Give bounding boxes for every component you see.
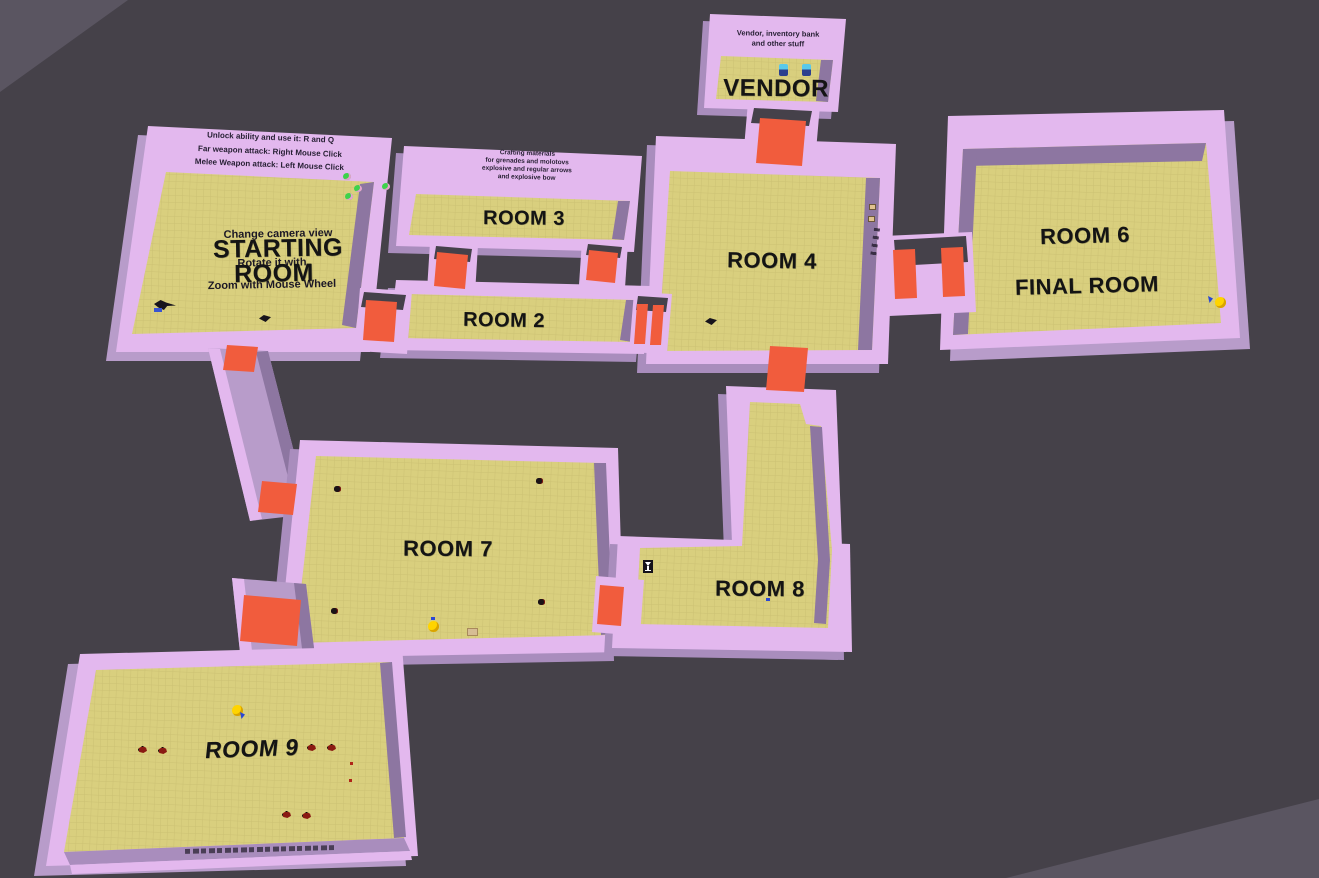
door-room3-left[interactable] (434, 252, 468, 289)
room8-label: ROOM 8 (715, 576, 805, 603)
enemy-icon (350, 762, 353, 765)
room3-wall-note: Crafting materials for grenades and molo… (432, 147, 623, 185)
door-room4-south[interactable] (766, 346, 808, 392)
door-vendor[interactable] (756, 118, 806, 166)
level-map: Unlock ability and use it: R and Q Far w… (0, 0, 1319, 878)
slime-icon[interactable] (354, 185, 362, 192)
slime-icon[interactable] (343, 173, 351, 180)
room7-label: ROOM 7 (403, 536, 493, 563)
corridor-room4-room6 (884, 232, 976, 316)
enemy-icon[interactable] (538, 599, 545, 605)
connector-starting-room2 (355, 288, 412, 354)
orb-icon[interactable] (1215, 297, 1226, 308)
slime-icon[interactable] (345, 193, 353, 200)
orb-icon[interactable] (428, 621, 439, 632)
door-starting-south[interactable] (223, 345, 258, 372)
door-room7-east[interactable] (597, 585, 624, 626)
door-room6-west[interactable] (941, 247, 965, 297)
final-room-label: FINAL ROOM (1015, 271, 1160, 301)
vendor-npc-icon[interactable] (802, 64, 811, 76)
enemy-icon[interactable] (536, 478, 543, 484)
door-room7-southwest[interactable] (240, 595, 301, 646)
crate-icon[interactable] (467, 628, 478, 636)
enemy-icon[interactable] (334, 486, 341, 492)
enemy-icon[interactable] (331, 608, 338, 614)
room6-label: ROOM 6 (1040, 222, 1130, 250)
chest-icon[interactable] (869, 204, 876, 210)
room9-label: ROOM 9 (204, 734, 301, 764)
door-room4-east[interactable] (893, 249, 917, 299)
slime-icon[interactable] (382, 183, 390, 190)
door-room3-right[interactable] (586, 250, 618, 283)
room2-label: ROOM 2 (463, 309, 545, 333)
door-starting-east[interactable] (363, 300, 397, 342)
vendor-npc-icon[interactable] (779, 64, 788, 76)
enemy-icon (349, 779, 352, 782)
marker-icon (431, 617, 435, 620)
connector-room7-room8 (592, 576, 644, 636)
chalice-icon[interactable] (643, 560, 653, 573)
crow-blue-detail (154, 308, 162, 312)
vendor-wall-note: Vendor, inventory bank and other stuff (698, 28, 858, 50)
marker-icon (766, 598, 770, 601)
door-room7-northwest[interactable] (258, 481, 297, 515)
starting-room-label-line2: ROOM (234, 259, 314, 289)
room4-label: ROOM 4 (727, 247, 817, 275)
corridor-vendor-room4 (742, 102, 820, 174)
vendor-label: VENDOR (723, 75, 829, 104)
connector-room2-room4 (629, 292, 672, 354)
room3-label: ROOM 3 (483, 207, 565, 231)
chest-icon[interactable] (868, 216, 875, 222)
